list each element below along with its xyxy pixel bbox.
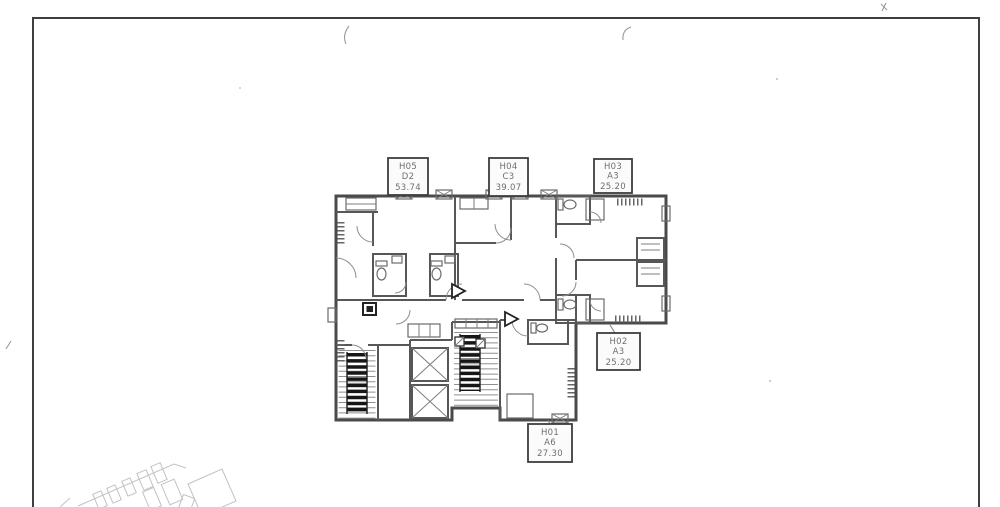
unit-id: H05 [399, 162, 417, 172]
unit-id: H04 [499, 162, 517, 172]
unit-area: 27.30 [537, 449, 563, 459]
unit-type: A3 [613, 347, 625, 357]
stairwell-right [455, 332, 485, 406]
floor-plan [328, 190, 670, 423]
unit-type: A6 [544, 438, 556, 448]
unit-label-h05: H05 D2 53.74 [388, 158, 428, 195]
scanned-drawing-page: H05 D2 53.74 H04 C3 39.07 H03 A3 25.20 H… [0, 0, 1000, 507]
unit-area: 25.20 [600, 182, 626, 192]
unit-type: A3 [607, 172, 619, 182]
site-plan-sketch [60, 463, 236, 507]
floor-plan-canvas: H05 D2 53.74 H04 C3 39.07 H03 A3 25.20 H… [0, 0, 1000, 507]
unit-id: H02 [609, 337, 627, 347]
unit-id: H01 [541, 428, 559, 438]
unit-label-h01: H01 A6 27.30 [528, 420, 572, 462]
unit-label-h03: H03 A3 25.20 [594, 159, 632, 193]
unit-id: H03 [604, 162, 622, 172]
unit-area: 53.74 [395, 183, 421, 193]
unit-area: 25.20 [606, 358, 632, 368]
unit-label-h04: H04 C3 39.07 [489, 158, 528, 196]
unit-type: D2 [402, 172, 415, 182]
electrical-panel-icon [367, 306, 374, 312]
stairwell-left [347, 350, 367, 419]
unit-area: 39.07 [496, 183, 522, 193]
unit-label-h02: H02 A3 25.20 [597, 325, 640, 370]
unit-type: C3 [503, 172, 515, 182]
